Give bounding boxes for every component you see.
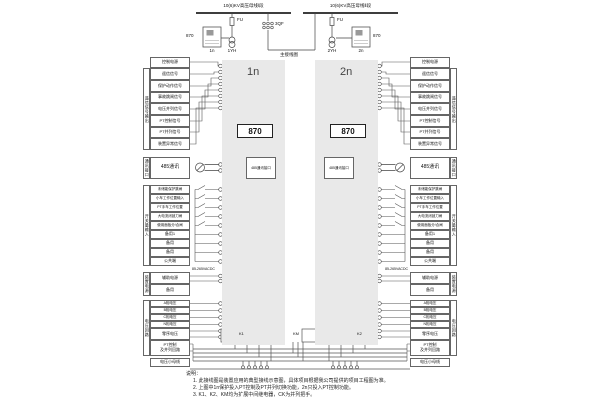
pt-label-right: 2YH <box>323 48 341 53</box>
device-label-top-left: 870 <box>186 33 194 38</box>
relay-label-k2: K2 <box>357 331 362 336</box>
voltage-pt-row: PT控制及并列回路 <box>150 340 190 356</box>
di-row: 备用1 <box>150 230 190 239</box>
di-row: 备用 <box>150 248 190 257</box>
voltage-pt-line2: 及并列回路 <box>420 348 440 353</box>
di-row: 小车工作位置输入 <box>150 194 190 203</box>
signal-row: 保护动作信号 <box>150 80 190 92</box>
device-870-right: 870 <box>330 124 366 138</box>
di-row: 备用1 <box>410 230 450 239</box>
signal-strip-left: 遥信信号输出 <box>143 68 150 150</box>
di-row: 备用 <box>150 239 190 248</box>
cabinet-icons <box>203 27 370 47</box>
signal-row: PT控制信号 <box>410 115 450 127</box>
note-line: 2. 上图中1n保护投入PT控制及PT并列切换功能，2n只投入PT控制功能。 <box>193 384 354 391</box>
di-strip-right: 开关量输入 <box>450 185 457 266</box>
di-row: 使用面板分/合闸 <box>410 221 450 230</box>
signal-row: 装置异常信号 <box>410 138 450 150</box>
di-row: 备用 <box>410 248 450 257</box>
voltage-zero-row: 零序电压 <box>410 328 450 340</box>
fuse-label-left: FU <box>237 17 243 22</box>
cabinet-label-right: 2n <box>355 48 367 53</box>
main-diagram-label: 主接线图 <box>280 52 298 58</box>
signal-row: 遥信信号 <box>150 68 190 80</box>
voltage-row: N相电压 <box>410 321 450 328</box>
di-row: 大电流闭锁刀闸 <box>150 212 190 221</box>
schematic-page: 10(6)KV高压母线Ⅰ段 10(6)KV高压母线Ⅱ段 FU FU 3QF 1Y… <box>0 0 600 400</box>
comm-box-left: 485通讯 <box>150 157 190 179</box>
power-range-left: 85-265VACDC <box>192 267 215 271</box>
cabinet-label-left: 1n <box>206 48 218 53</box>
voltage-strip-right: 电压回路 <box>450 300 457 356</box>
device-label-top-right: 870 <box>373 33 381 38</box>
signal-strip-right: 遥信信号输出 <box>450 68 457 150</box>
di-row: 公共端 <box>150 257 190 266</box>
voltage-row: A相电压 <box>410 300 450 307</box>
panel-1n-label: 1n <box>247 66 259 78</box>
pt-symbols <box>229 37 335 48</box>
fuse-label-right: FU <box>337 17 343 22</box>
voltage-row: B相电压 <box>410 307 450 314</box>
di-row: 备用 <box>410 239 450 248</box>
breaker-label: 3QF <box>275 21 284 26</box>
di-row: 大电流闭锁刀闸 <box>410 212 450 221</box>
voltage-bus-left: 电压小母线 <box>150 358 190 367</box>
power-row: 辅助电源 <box>150 272 190 284</box>
voltage-row: C相电压 <box>150 314 190 321</box>
voltage-bus-right: 电压小母线 <box>410 358 450 367</box>
signal-row: 保护动作信号 <box>410 80 450 92</box>
wiring-svg <box>0 0 600 400</box>
di-row: PT手车工作位置 <box>150 203 190 212</box>
voltage-row: C相电压 <box>410 314 450 321</box>
signal-row: PT并列信号 <box>410 127 450 138</box>
signal-row: 电压并列信号 <box>410 103 450 115</box>
signal-row: 装置异常信号 <box>150 138 190 150</box>
signal-row: 事故跳闸信号 <box>410 92 450 103</box>
di-row: 小车工作位置输入 <box>410 194 450 203</box>
bus-label-left: 10(6)KV高压母线Ⅰ段 <box>196 3 291 9</box>
voltage-row: N相电压 <box>150 321 190 328</box>
panel-2n <box>315 60 378 345</box>
di-row: 公共端 <box>410 257 450 266</box>
signal-row: 事故跳闸信号 <box>150 92 190 103</box>
voltage-zero-row: 零序电压 <box>150 328 190 340</box>
voltage-strip-left: 电压回路 <box>143 300 150 356</box>
signal-row: 遥信信号 <box>410 68 450 80</box>
voltage-row: B相电压 <box>150 307 190 314</box>
di-row: 使用面板分/合闸 <box>150 221 190 230</box>
signal-row: 电压并列信号 <box>150 103 190 115</box>
signal-header-left: 控制电源 <box>150 57 190 68</box>
power-row: 辅助电源 <box>410 272 450 284</box>
relay-label-k1: K1 <box>239 331 244 336</box>
voltage-pt-line2: 及并列回路 <box>160 348 180 353</box>
power-range-right: 85-265VACDC <box>385 267 408 271</box>
di-row: 未储能保护跳闸 <box>410 185 450 194</box>
signal-row: PT控制信号 <box>150 115 190 127</box>
di-strip-left: 开关量输入 <box>143 185 150 266</box>
panel-1n <box>222 60 285 345</box>
power-row: 备用 <box>150 284 190 296</box>
device-870-left: 870 <box>237 124 273 138</box>
comm-module-left: 485通讯接口 <box>246 157 276 179</box>
power-row: 备用 <box>410 284 450 296</box>
di-row: 未储能保护跳闸 <box>150 185 190 194</box>
comm-strip-right: 通讯接口 <box>450 157 457 179</box>
note-line: 3. K1、K2、KM均为扩展中间继电器，CK为并列把手。 <box>193 391 315 398</box>
signal-row: PT并列信号 <box>150 127 190 138</box>
bus-label-right: 10(6)KV高压母线Ⅱ段 <box>303 3 398 9</box>
signal-header-right: 控制电源 <box>410 57 450 68</box>
power-strip-right: 装置电源 <box>450 272 457 296</box>
di-row: PT手车工作位置 <box>410 203 450 212</box>
bottom-buses <box>190 342 410 369</box>
voltage-pt-row: PT控制及并列回路 <box>410 340 450 356</box>
pt-label-left: 1YH <box>223 48 241 53</box>
note-line: 1. 此接线图是装置应用的典型接线示意图，具体项目根据我公司提供的项目工程图为准… <box>193 377 389 384</box>
bottom-terminal-lugs <box>242 366 359 369</box>
power-strip-left: 装置电源 <box>143 272 150 296</box>
comm-module-right: 485通讯接口 <box>324 157 354 179</box>
voltage-row: A相电压 <box>150 300 190 307</box>
panel-2n-label: 2n <box>340 66 352 78</box>
comm-box-right: 485通讯 <box>410 157 450 179</box>
notes-title: 说明： <box>186 370 201 377</box>
relay-label-km: KM <box>293 331 299 336</box>
comm-strip-left: 通讯接口 <box>143 157 150 179</box>
breaker-contacts <box>263 22 274 29</box>
